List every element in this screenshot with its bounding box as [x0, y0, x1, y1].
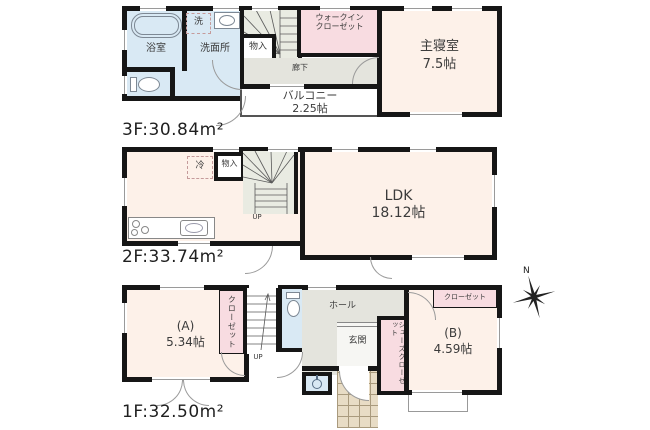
window — [268, 147, 298, 152]
wic-label: ウォークイン クローゼット — [297, 14, 382, 32]
door-arc — [370, 257, 392, 279]
room-b-size-label: 4.59帖 — [404, 343, 502, 356]
balcony-size-label: 2.25帖 — [240, 103, 380, 115]
wic-label-line1: ウォークイン — [316, 13, 364, 22]
tap-icon-stem — [316, 375, 318, 380]
genkan-step-line — [337, 322, 378, 323]
tap-icon — [312, 379, 322, 389]
bedroom-size-label: 7.5帖 — [377, 58, 502, 73]
f3-storage-label: 物入 — [240, 42, 276, 52]
window — [252, 6, 278, 11]
compass-north-label: N — [523, 266, 530, 276]
window — [178, 241, 210, 246]
f2-stair-steps — [243, 151, 298, 214]
door-arc — [245, 246, 273, 274]
closet-a-label: クローゼット — [227, 295, 235, 351]
window — [140, 6, 166, 11]
shoes-closet-label: シューズクローゼット — [383, 321, 405, 389]
toilet-tank-icon-3f — [130, 77, 137, 92]
f3-wall-toilet-right — [170, 72, 175, 96]
window — [497, 318, 502, 348]
ldk-label: LDK — [300, 189, 497, 205]
compass-rose: N — [503, 263, 565, 325]
window — [213, 147, 239, 152]
window — [308, 285, 336, 290]
window — [410, 112, 462, 117]
f1-hall-south-wall-left — [302, 366, 339, 371]
kitchen-sink-bowl-icon — [185, 223, 203, 233]
window — [122, 30, 127, 50]
f2-up-label: UP — [247, 214, 267, 222]
f3-area-label: 3F:30.84m² — [122, 120, 224, 140]
window — [452, 6, 482, 11]
f2-storage-label: 物入 — [214, 160, 245, 169]
room-b-label: (B) — [404, 327, 502, 340]
window — [270, 84, 304, 89]
genkan-label: 玄関 — [337, 336, 378, 346]
hall-label: ホール — [315, 301, 370, 311]
f3-wall-bath-toilet — [127, 67, 175, 72]
stove-burner-icon — [141, 226, 149, 234]
corridor-label: 廊下 — [280, 64, 320, 73]
washroom-label: 洗面所 — [185, 43, 245, 54]
window — [122, 76, 127, 94]
stove-burner-icon — [131, 229, 138, 236]
fridge-label: 冷 — [187, 161, 213, 171]
f1-stair-steps — [247, 288, 276, 354]
stove-burner-icon — [132, 220, 140, 228]
toilet-bowl-icon-3f — [138, 77, 160, 92]
terrace-step — [408, 395, 468, 412]
bedroom-label: 主寝室 — [377, 40, 502, 55]
toilet-tank-icon-1f — [286, 292, 300, 299]
toilet-bowl-icon-1f — [287, 300, 300, 317]
washbasin-bowl-icon-3f — [219, 15, 235, 26]
floor-plan-canvas: 洗 浴室 洗面所 物入 ウォークイン クローゼット 廊下 バルコニー 2.25帖… — [0, 0, 650, 430]
laundry-label: 洗 — [186, 17, 211, 27]
f2-area-label: 2F:33.74m² — [122, 247, 224, 267]
door-arc — [277, 352, 303, 378]
window — [412, 255, 464, 260]
balcony-label: バルコニー — [240, 90, 380, 102]
window — [332, 147, 358, 152]
ldk-size-label: 18.12帖 — [300, 206, 497, 222]
window — [320, 6, 350, 11]
window — [410, 147, 436, 152]
bath-label: 浴室 — [127, 43, 185, 54]
genkan-step-line — [337, 326, 378, 327]
window — [122, 178, 127, 206]
f1-area-label: 1F:32.50m² — [122, 402, 224, 422]
wic-label-line2: クローゼット — [316, 22, 364, 31]
closet-b-label: クローゼット — [433, 294, 497, 302]
window — [404, 6, 432, 11]
window — [122, 303, 127, 333]
bathtub-inner-icon — [134, 16, 179, 35]
window — [160, 285, 204, 290]
f1-up-label: UP — [248, 354, 268, 362]
window — [213, 6, 239, 11]
window — [412, 390, 462, 395]
window — [492, 175, 497, 207]
